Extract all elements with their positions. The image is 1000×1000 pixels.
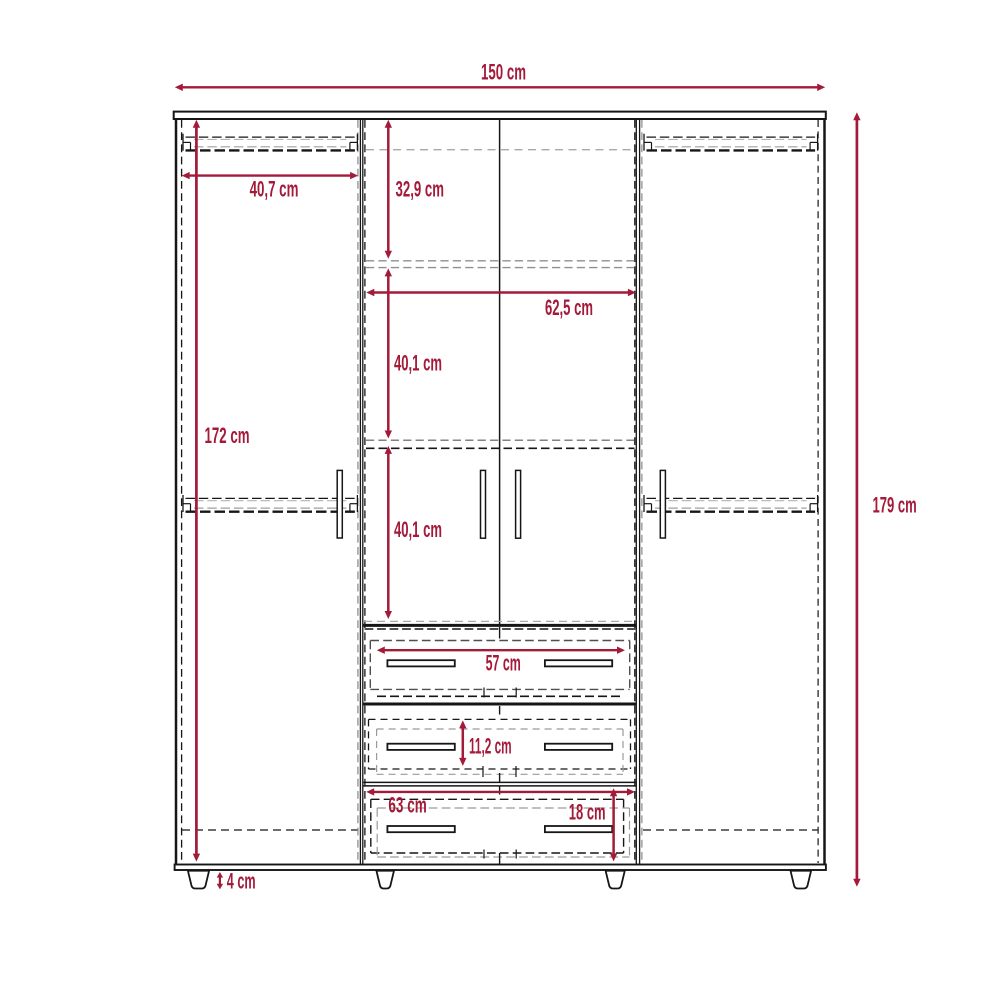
svg-text:18 cm: 18 cm xyxy=(569,800,606,825)
svg-text:40,1 cm: 40,1 cm xyxy=(394,351,442,376)
svg-text:63 cm: 63 cm xyxy=(388,793,426,818)
svg-text:40,7 cm: 40,7 cm xyxy=(250,177,299,202)
svg-text:11,2 cm: 11,2 cm xyxy=(469,733,512,758)
svg-text:32,9 cm: 32,9 cm xyxy=(396,177,445,202)
svg-text:40,1 cm: 40,1 cm xyxy=(394,517,442,542)
svg-text:62,5 cm: 62,5 cm xyxy=(545,295,593,320)
svg-text:4 cm: 4 cm xyxy=(227,869,256,894)
svg-text:57 cm: 57 cm xyxy=(486,651,521,676)
svg-text:179 cm: 179 cm xyxy=(873,493,917,518)
svg-text:172 cm: 172 cm xyxy=(205,423,250,448)
svg-text:150 cm: 150 cm xyxy=(481,60,526,85)
